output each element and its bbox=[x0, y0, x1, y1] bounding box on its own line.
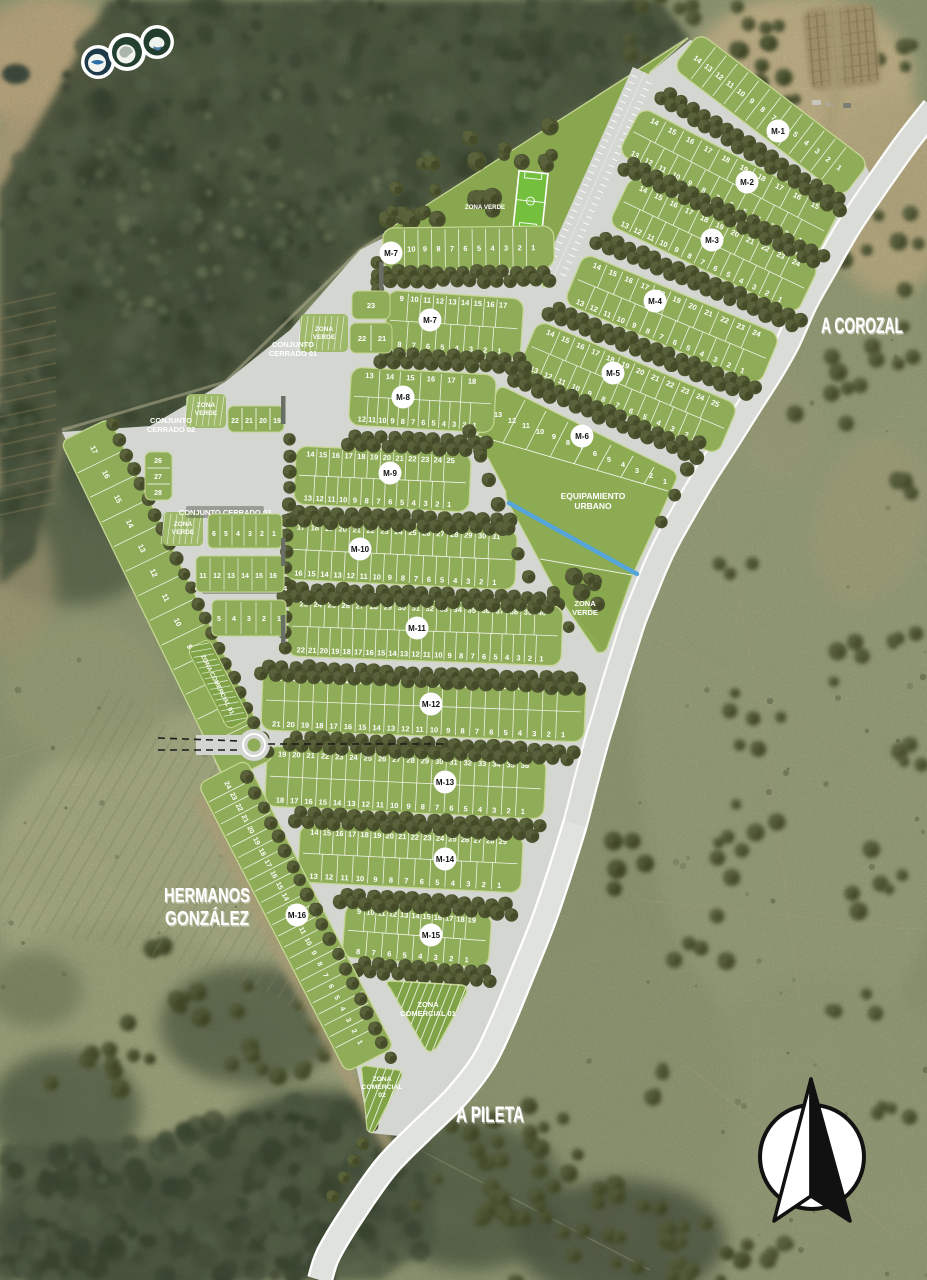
svg-text:19: 19 bbox=[273, 418, 281, 425]
svg-text:16: 16 bbox=[331, 451, 340, 460]
svg-text:11: 11 bbox=[368, 415, 376, 424]
svg-text:3: 3 bbox=[492, 806, 497, 815]
svg-text:14: 14 bbox=[310, 828, 320, 837]
svg-text:A COROZAL: A COROZAL bbox=[821, 313, 903, 338]
svg-text:M-5: M-5 bbox=[606, 369, 620, 378]
svg-text:14: 14 bbox=[306, 449, 316, 458]
svg-text:1: 1 bbox=[531, 243, 535, 252]
svg-text:ZONA: ZONA bbox=[315, 326, 334, 333]
svg-text:CERRADO 01: CERRADO 01 bbox=[269, 349, 317, 358]
svg-text:ZONA: ZONA bbox=[574, 599, 596, 608]
svg-text:ZONA: ZONA bbox=[372, 1076, 391, 1083]
svg-text:3: 3 bbox=[532, 729, 537, 738]
svg-text:1: 1 bbox=[447, 500, 452, 509]
svg-text:ZONA: ZONA bbox=[417, 1000, 439, 1009]
svg-text:5: 5 bbox=[477, 244, 481, 253]
svg-text:1: 1 bbox=[561, 730, 566, 739]
svg-text:5: 5 bbox=[224, 531, 228, 538]
svg-text:VERDE: VERDE bbox=[195, 410, 218, 417]
svg-text:15: 15 bbox=[255, 573, 263, 580]
svg-text:9: 9 bbox=[447, 651, 451, 660]
svg-text:6: 6 bbox=[489, 727, 494, 736]
svg-text:7: 7 bbox=[414, 574, 419, 583]
svg-text:8: 8 bbox=[460, 726, 465, 735]
svg-text:M-11: M-11 bbox=[408, 624, 426, 633]
svg-text:5: 5 bbox=[217, 616, 221, 623]
svg-text:11: 11 bbox=[199, 573, 207, 580]
svg-text:10: 10 bbox=[407, 245, 415, 254]
svg-text:21: 21 bbox=[272, 719, 281, 728]
svg-text:12: 12 bbox=[357, 414, 366, 423]
svg-text:11: 11 bbox=[522, 421, 530, 430]
svg-text:2: 2 bbox=[481, 880, 486, 889]
svg-text:VERDE: VERDE bbox=[172, 529, 195, 536]
svg-text:7: 7 bbox=[404, 876, 409, 885]
svg-text:7: 7 bbox=[435, 803, 440, 812]
svg-text:16: 16 bbox=[304, 797, 313, 806]
svg-text:8: 8 bbox=[436, 244, 440, 253]
svg-text:9: 9 bbox=[406, 802, 411, 811]
svg-text:24: 24 bbox=[433, 455, 443, 464]
svg-text:11: 11 bbox=[423, 650, 431, 659]
svg-text:M-1: M-1 bbox=[771, 127, 785, 136]
svg-text:10: 10 bbox=[339, 495, 348, 504]
svg-text:M-3: M-3 bbox=[705, 236, 719, 245]
svg-text:12: 12 bbox=[401, 724, 410, 733]
svg-text:22: 22 bbox=[231, 418, 239, 425]
svg-text:12: 12 bbox=[346, 571, 355, 580]
svg-text:1: 1 bbox=[272, 531, 276, 538]
svg-text:7: 7 bbox=[470, 652, 474, 661]
svg-text:9: 9 bbox=[446, 726, 451, 735]
svg-text:5: 5 bbox=[402, 950, 407, 959]
svg-text:M-7: M-7 bbox=[423, 316, 437, 325]
svg-text:12: 12 bbox=[411, 650, 420, 659]
svg-text:17: 17 bbox=[344, 451, 353, 460]
svg-text:8: 8 bbox=[389, 875, 394, 884]
svg-text:10: 10 bbox=[356, 874, 365, 883]
svg-text:19: 19 bbox=[370, 452, 379, 461]
svg-text:1: 1 bbox=[663, 477, 667, 486]
svg-text:10: 10 bbox=[536, 427, 544, 436]
svg-text:27: 27 bbox=[154, 474, 162, 481]
svg-text:6: 6 bbox=[449, 804, 454, 813]
svg-text:28: 28 bbox=[154, 490, 162, 497]
svg-text:24: 24 bbox=[349, 753, 359, 762]
svg-text:20: 20 bbox=[259, 418, 267, 425]
svg-text:11: 11 bbox=[327, 495, 335, 504]
svg-text:6: 6 bbox=[463, 244, 467, 253]
svg-text:M-9: M-9 bbox=[383, 469, 397, 478]
svg-text:M-8: M-8 bbox=[396, 393, 410, 402]
svg-text:GONZÁLEZ: GONZÁLEZ bbox=[165, 907, 249, 930]
svg-text:11: 11 bbox=[376, 800, 384, 809]
svg-text:19: 19 bbox=[278, 750, 287, 759]
svg-text:2: 2 bbox=[260, 531, 264, 538]
svg-text:4: 4 bbox=[236, 531, 240, 538]
svg-text:18: 18 bbox=[468, 376, 477, 385]
svg-text:16: 16 bbox=[486, 300, 495, 310]
svg-text:1: 1 bbox=[464, 955, 469, 964]
svg-text:13: 13 bbox=[448, 297, 457, 307]
svg-text:14: 14 bbox=[333, 798, 343, 807]
svg-text:2: 2 bbox=[435, 499, 440, 508]
svg-text:17: 17 bbox=[290, 796, 299, 805]
svg-text:10: 10 bbox=[430, 725, 439, 734]
svg-text:8: 8 bbox=[364, 496, 369, 505]
svg-text:8: 8 bbox=[356, 947, 361, 956]
svg-text:20: 20 bbox=[383, 453, 392, 462]
svg-text:2: 2 bbox=[649, 471, 653, 480]
svg-text:1: 1 bbox=[497, 881, 502, 890]
svg-text:5: 5 bbox=[463, 804, 468, 813]
svg-text:M-2: M-2 bbox=[740, 178, 754, 187]
svg-text:14: 14 bbox=[372, 723, 381, 732]
svg-text:CONJUNTO: CONJUNTO bbox=[272, 340, 314, 349]
svg-text:4: 4 bbox=[232, 616, 236, 623]
svg-text:18: 18 bbox=[360, 830, 369, 839]
svg-text:21: 21 bbox=[245, 418, 253, 425]
svg-text:15: 15 bbox=[318, 797, 327, 806]
svg-text:10: 10 bbox=[434, 650, 443, 659]
svg-text:12: 12 bbox=[435, 296, 444, 306]
svg-text:11: 11 bbox=[340, 873, 348, 882]
svg-text:M-15: M-15 bbox=[422, 931, 441, 940]
svg-text:6: 6 bbox=[421, 418, 426, 427]
svg-text:9: 9 bbox=[353, 496, 358, 505]
svg-text:5: 5 bbox=[435, 878, 440, 887]
svg-text:13: 13 bbox=[309, 872, 318, 881]
svg-text:3: 3 bbox=[466, 879, 471, 888]
svg-text:ZONA: ZONA bbox=[197, 402, 216, 409]
svg-text:15: 15 bbox=[377, 648, 386, 657]
svg-text:9: 9 bbox=[388, 573, 393, 582]
svg-text:9: 9 bbox=[552, 432, 556, 441]
svg-text:M-7: M-7 bbox=[384, 249, 398, 258]
svg-text:16: 16 bbox=[269, 573, 277, 580]
svg-text:2: 2 bbox=[449, 954, 454, 963]
svg-text:16: 16 bbox=[344, 722, 353, 731]
svg-text:6: 6 bbox=[212, 531, 216, 538]
svg-text:7: 7 bbox=[411, 417, 416, 426]
svg-text:23: 23 bbox=[421, 455, 430, 464]
svg-text:7: 7 bbox=[371, 948, 376, 957]
svg-text:15: 15 bbox=[358, 723, 367, 732]
svg-text:M-14: M-14 bbox=[436, 855, 455, 864]
svg-text:3: 3 bbox=[248, 531, 252, 538]
svg-text:11: 11 bbox=[415, 725, 423, 734]
svg-text:VERDE: VERDE bbox=[313, 334, 336, 341]
svg-text:12: 12 bbox=[361, 799, 370, 808]
svg-text:8: 8 bbox=[459, 651, 463, 660]
svg-text:5: 5 bbox=[431, 419, 436, 428]
svg-text:3: 3 bbox=[433, 953, 438, 962]
svg-text:23: 23 bbox=[367, 301, 375, 310]
svg-text:17: 17 bbox=[447, 375, 456, 384]
svg-text:3: 3 bbox=[247, 616, 251, 623]
svg-text:13: 13 bbox=[303, 493, 312, 502]
svg-text:6: 6 bbox=[388, 497, 393, 506]
svg-text:22: 22 bbox=[297, 645, 306, 654]
svg-text:14: 14 bbox=[386, 372, 396, 381]
svg-text:10: 10 bbox=[378, 416, 387, 425]
svg-text:5: 5 bbox=[440, 575, 445, 584]
svg-text:19: 19 bbox=[373, 831, 382, 840]
svg-text:17: 17 bbox=[499, 300, 508, 310]
svg-text:3: 3 bbox=[452, 420, 457, 429]
svg-text:M-13: M-13 bbox=[436, 778, 455, 787]
svg-text:16: 16 bbox=[294, 568, 303, 577]
svg-text:A PILETA: A PILETA bbox=[456, 1102, 524, 1127]
svg-text:2: 2 bbox=[479, 577, 484, 586]
svg-text:COMERCIAL 01: COMERCIAL 01 bbox=[400, 1009, 456, 1018]
svg-text:1: 1 bbox=[277, 616, 281, 623]
svg-text:8: 8 bbox=[566, 438, 570, 447]
svg-text:19: 19 bbox=[301, 720, 310, 729]
svg-text:3: 3 bbox=[423, 499, 428, 508]
svg-text:EQUIPAMIENTO: EQUIPAMIENTO bbox=[561, 491, 626, 501]
svg-text:8: 8 bbox=[401, 417, 406, 426]
svg-text:2: 2 bbox=[506, 806, 511, 815]
svg-text:6: 6 bbox=[420, 877, 425, 886]
svg-text:6: 6 bbox=[593, 449, 597, 458]
svg-text:M-12: M-12 bbox=[422, 700, 441, 709]
svg-text:2: 2 bbox=[546, 730, 551, 739]
svg-text:9: 9 bbox=[373, 875, 378, 884]
svg-text:10: 10 bbox=[390, 801, 399, 810]
svg-text:14: 14 bbox=[388, 649, 397, 658]
svg-text:17: 17 bbox=[348, 829, 357, 838]
svg-text:7: 7 bbox=[475, 727, 480, 736]
svg-text:14: 14 bbox=[241, 573, 249, 580]
svg-text:12: 12 bbox=[213, 573, 221, 580]
svg-text:M-16: M-16 bbox=[288, 911, 307, 920]
svg-text:13: 13 bbox=[365, 371, 374, 380]
svg-text:22: 22 bbox=[358, 334, 366, 343]
svg-text:7: 7 bbox=[376, 497, 381, 506]
svg-text:13: 13 bbox=[400, 649, 409, 658]
svg-text:19: 19 bbox=[331, 647, 340, 656]
svg-text:12: 12 bbox=[315, 494, 324, 503]
svg-text:ZONA: ZONA bbox=[174, 521, 193, 528]
svg-text:20: 20 bbox=[319, 646, 328, 655]
svg-text:8: 8 bbox=[421, 802, 426, 811]
svg-text:12: 12 bbox=[508, 416, 516, 425]
svg-text:21: 21 bbox=[395, 454, 404, 463]
svg-text:10: 10 bbox=[410, 295, 419, 305]
svg-text:13: 13 bbox=[347, 799, 356, 808]
svg-text:13: 13 bbox=[387, 724, 396, 733]
svg-text:2: 2 bbox=[262, 616, 266, 623]
svg-text:8: 8 bbox=[401, 574, 406, 583]
svg-text:1: 1 bbox=[492, 578, 497, 587]
svg-text:9: 9 bbox=[423, 244, 427, 253]
svg-text:5: 5 bbox=[493, 653, 497, 662]
svg-text:18: 18 bbox=[342, 647, 351, 656]
svg-text:21: 21 bbox=[378, 334, 386, 343]
svg-text:VERDE: VERDE bbox=[572, 608, 598, 617]
svg-text:COMERCIAL: COMERCIAL bbox=[361, 1084, 402, 1091]
svg-text:M-6: M-6 bbox=[575, 432, 589, 441]
svg-text:16: 16 bbox=[427, 374, 436, 383]
svg-text:15: 15 bbox=[319, 450, 328, 459]
svg-text:7: 7 bbox=[450, 244, 454, 253]
svg-text:21: 21 bbox=[308, 646, 317, 655]
svg-text:18: 18 bbox=[315, 721, 324, 730]
svg-text:URBANO: URBANO bbox=[574, 501, 612, 511]
svg-text:3: 3 bbox=[516, 653, 520, 662]
svg-text:15: 15 bbox=[406, 373, 415, 382]
svg-text:26: 26 bbox=[154, 458, 162, 465]
svg-text:CONJUNTO: CONJUNTO bbox=[150, 416, 192, 425]
svg-text:1: 1 bbox=[521, 807, 526, 816]
svg-text:15: 15 bbox=[307, 569, 316, 578]
svg-text:14: 14 bbox=[461, 298, 471, 308]
svg-text:5: 5 bbox=[503, 728, 508, 737]
svg-text:11: 11 bbox=[423, 295, 432, 305]
svg-text:M-10: M-10 bbox=[351, 545, 370, 554]
svg-text:13: 13 bbox=[333, 570, 342, 579]
svg-text:14: 14 bbox=[320, 570, 330, 579]
svg-text:3: 3 bbox=[635, 466, 639, 475]
svg-text:12: 12 bbox=[325, 872, 334, 881]
svg-text:16: 16 bbox=[365, 648, 374, 657]
svg-text:9: 9 bbox=[399, 294, 404, 303]
svg-text:25: 25 bbox=[446, 456, 455, 465]
svg-text:15: 15 bbox=[473, 299, 482, 309]
svg-text:3: 3 bbox=[466, 577, 471, 586]
svg-text:9: 9 bbox=[390, 416, 395, 425]
svg-text:11: 11 bbox=[360, 572, 368, 581]
svg-text:6: 6 bbox=[387, 949, 392, 958]
svg-text:5: 5 bbox=[607, 455, 611, 464]
svg-text:5: 5 bbox=[400, 498, 405, 507]
svg-text:HERMANOS: HERMANOS bbox=[164, 885, 250, 907]
svg-text:3: 3 bbox=[504, 244, 508, 253]
svg-text:M-4: M-4 bbox=[648, 297, 662, 306]
svg-text:2: 2 bbox=[528, 654, 532, 663]
svg-text:6: 6 bbox=[482, 652, 486, 661]
svg-text:18: 18 bbox=[276, 795, 285, 804]
svg-text:1: 1 bbox=[539, 654, 543, 663]
svg-text:ZONA VERDE: ZONA VERDE bbox=[465, 204, 505, 211]
svg-text:13: 13 bbox=[227, 573, 235, 580]
svg-text:02: 02 bbox=[378, 1092, 386, 1099]
svg-text:2: 2 bbox=[518, 243, 522, 252]
svg-text:18: 18 bbox=[357, 452, 366, 461]
svg-text:22: 22 bbox=[408, 454, 417, 463]
svg-text:CERRADO 02: CERRADO 02 bbox=[147, 425, 195, 434]
svg-text:17: 17 bbox=[354, 647, 363, 656]
svg-text:10: 10 bbox=[372, 572, 381, 581]
svg-text:6: 6 bbox=[427, 575, 432, 584]
svg-text:20: 20 bbox=[286, 720, 295, 729]
svg-text:17: 17 bbox=[329, 722, 338, 731]
